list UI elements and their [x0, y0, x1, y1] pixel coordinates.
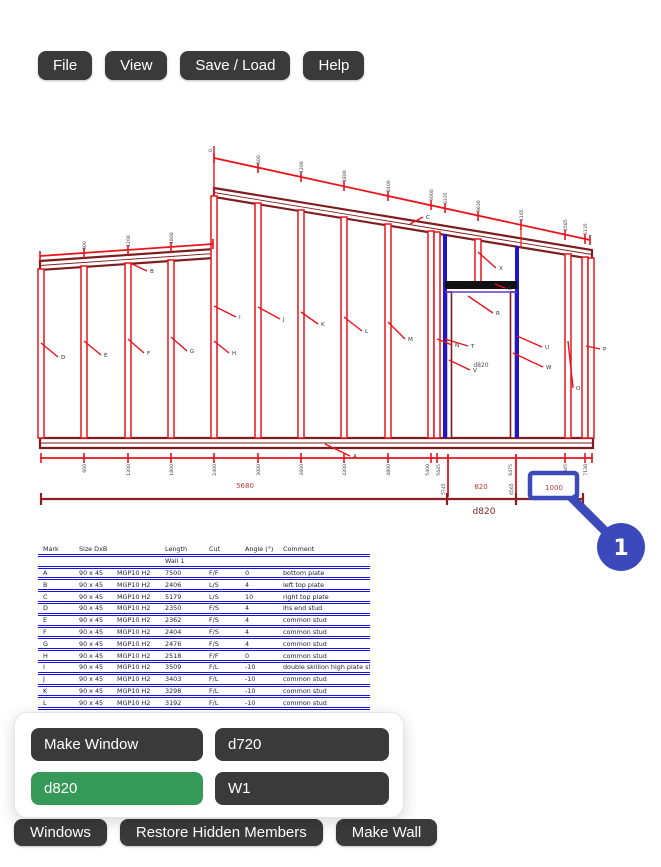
- windows-button[interactable]: Windows: [14, 819, 107, 846]
- make-window-button[interactable]: Make Window: [31, 728, 203, 761]
- table-row: B90 x 45MGP10 H22406L/S4left top plate: [38, 580, 370, 592]
- mark-leader-line: [388, 322, 405, 339]
- stud-mark-label: L: [365, 329, 369, 335]
- dim-highlight-box: [530, 473, 577, 498]
- mark-leader-line: [301, 312, 318, 324]
- table-row: A90 x 45MGP10 H27500F/F0bottom plate: [38, 569, 370, 581]
- dim-tick-label: 7045: [563, 464, 569, 476]
- jamb-stud: [511, 292, 516, 438]
- dim-tick-label: 1800: [169, 232, 175, 244]
- mark-leader-line: [517, 336, 542, 347]
- dim-tick-label: 4585: [563, 219, 569, 231]
- dim-tick-label: 5135: [583, 223, 589, 235]
- dim-tick-label: 1200: [299, 161, 305, 173]
- table-row: D90 x 45MGP10 H22350F/S4lhs end stud: [38, 604, 370, 616]
- dim-tick-label: 600: [82, 464, 88, 473]
- stud-mark-label: G: [190, 349, 194, 355]
- stud: [341, 217, 347, 438]
- dim-tick-label: 600: [82, 241, 88, 250]
- dim-tick-label: 5745: [441, 483, 447, 495]
- stud-mark-label: T: [470, 344, 475, 350]
- dim-tick-label: 7130: [583, 464, 589, 476]
- table-row: F90 x 45MGP10 H22404F/S4common stud: [38, 628, 370, 640]
- dim-tick-label: 1200: [126, 235, 132, 247]
- dim-tick-label: 3600: [299, 464, 305, 476]
- right-top-plate: [214, 188, 592, 259]
- left-top-plate: [40, 249, 214, 270]
- menu-button-save-load[interactable]: Save / Load: [180, 51, 290, 80]
- dim-tick-label: 4800: [386, 464, 392, 476]
- stud: [428, 231, 434, 438]
- make-wall-button[interactable]: Make Wall: [336, 819, 437, 846]
- dim-tick-label: 2400: [212, 464, 218, 476]
- jamb-stud: [447, 292, 452, 438]
- menu-button-help[interactable]: Help: [303, 51, 364, 80]
- stud-mark-label: F: [147, 351, 150, 357]
- table-row: E90 x 45MGP10 H22362F/S4common stud: [38, 616, 370, 628]
- mark-leader-line: [325, 444, 350, 456]
- stud-mark-label: X: [499, 266, 503, 272]
- mark-leader-line: [171, 337, 187, 351]
- table-row: K90 x 45MGP10 H23298F/L-10common stud: [38, 687, 370, 699]
- stud-mark-label: I: [239, 315, 241, 321]
- table-row: J90 x 45MGP10 H23403F/L-10common stud: [38, 675, 370, 687]
- stud: [81, 266, 87, 438]
- bottom-plate: [40, 438, 593, 448]
- stud-mark-label: B: [150, 269, 154, 275]
- mark-leader-line: [41, 343, 58, 357]
- dim-value-label: d820: [473, 507, 496, 517]
- bottom-toolbar: Windows Restore Hidden Members Make Wall: [14, 819, 437, 846]
- stud: [385, 224, 391, 438]
- stud-mark-label: J: [282, 317, 285, 323]
- mark-leader-line: [468, 296, 493, 313]
- window-type-d720-button[interactable]: d720: [215, 728, 389, 761]
- table-row: I90 x 45MGP10 H23509F/L-10double skillio…: [38, 663, 370, 675]
- dim-tick-label: 5645: [436, 464, 442, 476]
- stud: [475, 239, 481, 282]
- restore-hidden-members-button[interactable]: Restore Hidden Members: [120, 819, 323, 846]
- stud: [298, 210, 304, 438]
- table-row: L90 x 45MGP10 H23192F/L-10common stud: [38, 698, 370, 710]
- mark-leader-line: [478, 252, 496, 268]
- dim-tick-label: 1800: [169, 464, 175, 476]
- window-name-w1-button[interactable]: W1: [215, 772, 389, 805]
- stud-mark-label: R: [496, 311, 500, 317]
- mark-leader-line: [214, 306, 236, 317]
- window-type-d820-button-selected[interactable]: d820: [31, 772, 203, 805]
- mark-leader-line: [214, 341, 229, 353]
- stud-mark-label: A: [353, 454, 357, 460]
- stud: [38, 269, 44, 438]
- step-badge-number: 1: [613, 536, 628, 561]
- dim-value-label: 820: [474, 483, 487, 491]
- stud: [588, 258, 594, 438]
- step-badge: [597, 523, 645, 571]
- stud-mark-label: C: [426, 215, 430, 221]
- mark-leader-line: [344, 317, 362, 331]
- stud-mark-label: H: [232, 351, 236, 357]
- dimension-line: [40, 244, 213, 256]
- table-row: H90 x 45MGP10 H22518F/F0common stud: [38, 651, 370, 663]
- dim-tick-label: 3630: [476, 200, 482, 212]
- menu-button-view[interactable]: View: [105, 51, 167, 80]
- stud-mark-label: O: [576, 386, 581, 392]
- dim-value-label: 5680: [236, 482, 254, 490]
- stud-mark-label: E: [104, 353, 108, 359]
- dim-tick-label: 3000: [256, 464, 262, 476]
- stud: [125, 263, 131, 438]
- stud-mark-label: N: [455, 343, 459, 349]
- mark-leader-line: [437, 339, 452, 345]
- mark-leader-line: [258, 307, 280, 319]
- stud-mark-label: D: [61, 355, 65, 361]
- stud: [168, 260, 174, 438]
- stud-mark-label: U: [545, 345, 549, 351]
- dimension-line: [214, 158, 590, 240]
- table-row: G90 x 45MGP10 H22476F/S4common stud: [38, 639, 370, 651]
- dim-tick-label: 4165: [519, 209, 525, 221]
- window-header: [445, 281, 517, 289]
- mark-leader-line: [586, 346, 600, 349]
- window-popup-card: Make Window d720 d820 W1: [14, 712, 404, 818]
- table-header-row: MarkSize DxBLengthCutAngle (°)Comment: [38, 545, 370, 557]
- table-row: C90 x 45MGP10 H25179L/S10right top plate: [38, 592, 370, 604]
- mark-leader-line: [513, 353, 543, 367]
- mark-leader-line: [568, 341, 573, 388]
- stud: [565, 254, 571, 438]
- stud: [211, 196, 217, 438]
- stud-mark-label: M: [408, 337, 413, 343]
- dim-tick-label: 6475: [508, 464, 514, 476]
- stud-mark-label: W: [546, 365, 552, 371]
- mark-leader-line: [410, 217, 423, 224]
- stud-mark-label: S: [508, 286, 512, 292]
- mark-leader-line: [449, 360, 470, 370]
- wall-framing-drawing[interactable]: d820600120018000600120018002400300033353…: [0, 130, 661, 580]
- dim-tick-label: 1800: [342, 170, 348, 182]
- highlighted-dim-value: 1000: [545, 484, 563, 492]
- mark-leader-line: [84, 341, 101, 355]
- mark-leader-line: [128, 339, 144, 353]
- dim-tick-label: 4200: [342, 464, 348, 476]
- dim-tick-label: 1200: [126, 464, 132, 476]
- dim-tick-label: 3000: [429, 189, 435, 201]
- dim-tick-label: 5400: [425, 464, 431, 476]
- dim-tick-label: 2400: [386, 180, 392, 192]
- step-badge-connector: [571, 497, 612, 538]
- table-group-row: Wall 1: [38, 557, 370, 569]
- cutting-list-table: MarkSize DxBLengthCutAngle (°)CommentWal…: [38, 545, 370, 722]
- stud: [434, 232, 440, 438]
- opening-size-label: d820: [473, 362, 488, 369]
- mark-leader-line: [130, 263, 147, 271]
- menu-button-file[interactable]: File: [38, 51, 92, 80]
- stud-mark-label: V: [473, 368, 477, 374]
- dim-tick-label: 6565: [509, 483, 515, 495]
- stud: [255, 203, 261, 438]
- mark-leader-line: [445, 339, 468, 346]
- dim-tick-label: 3335: [443, 192, 449, 204]
- stud-mark-label: K: [321, 322, 325, 328]
- stud-mark-label: P: [603, 347, 607, 353]
- mark-leader-line: [495, 284, 505, 288]
- dim-tick-label: 0: [208, 149, 214, 152]
- stud: [582, 257, 588, 438]
- dim-tick-label: 600: [256, 155, 262, 164]
- menu-bar: File View Save / Load Help: [38, 51, 364, 80]
